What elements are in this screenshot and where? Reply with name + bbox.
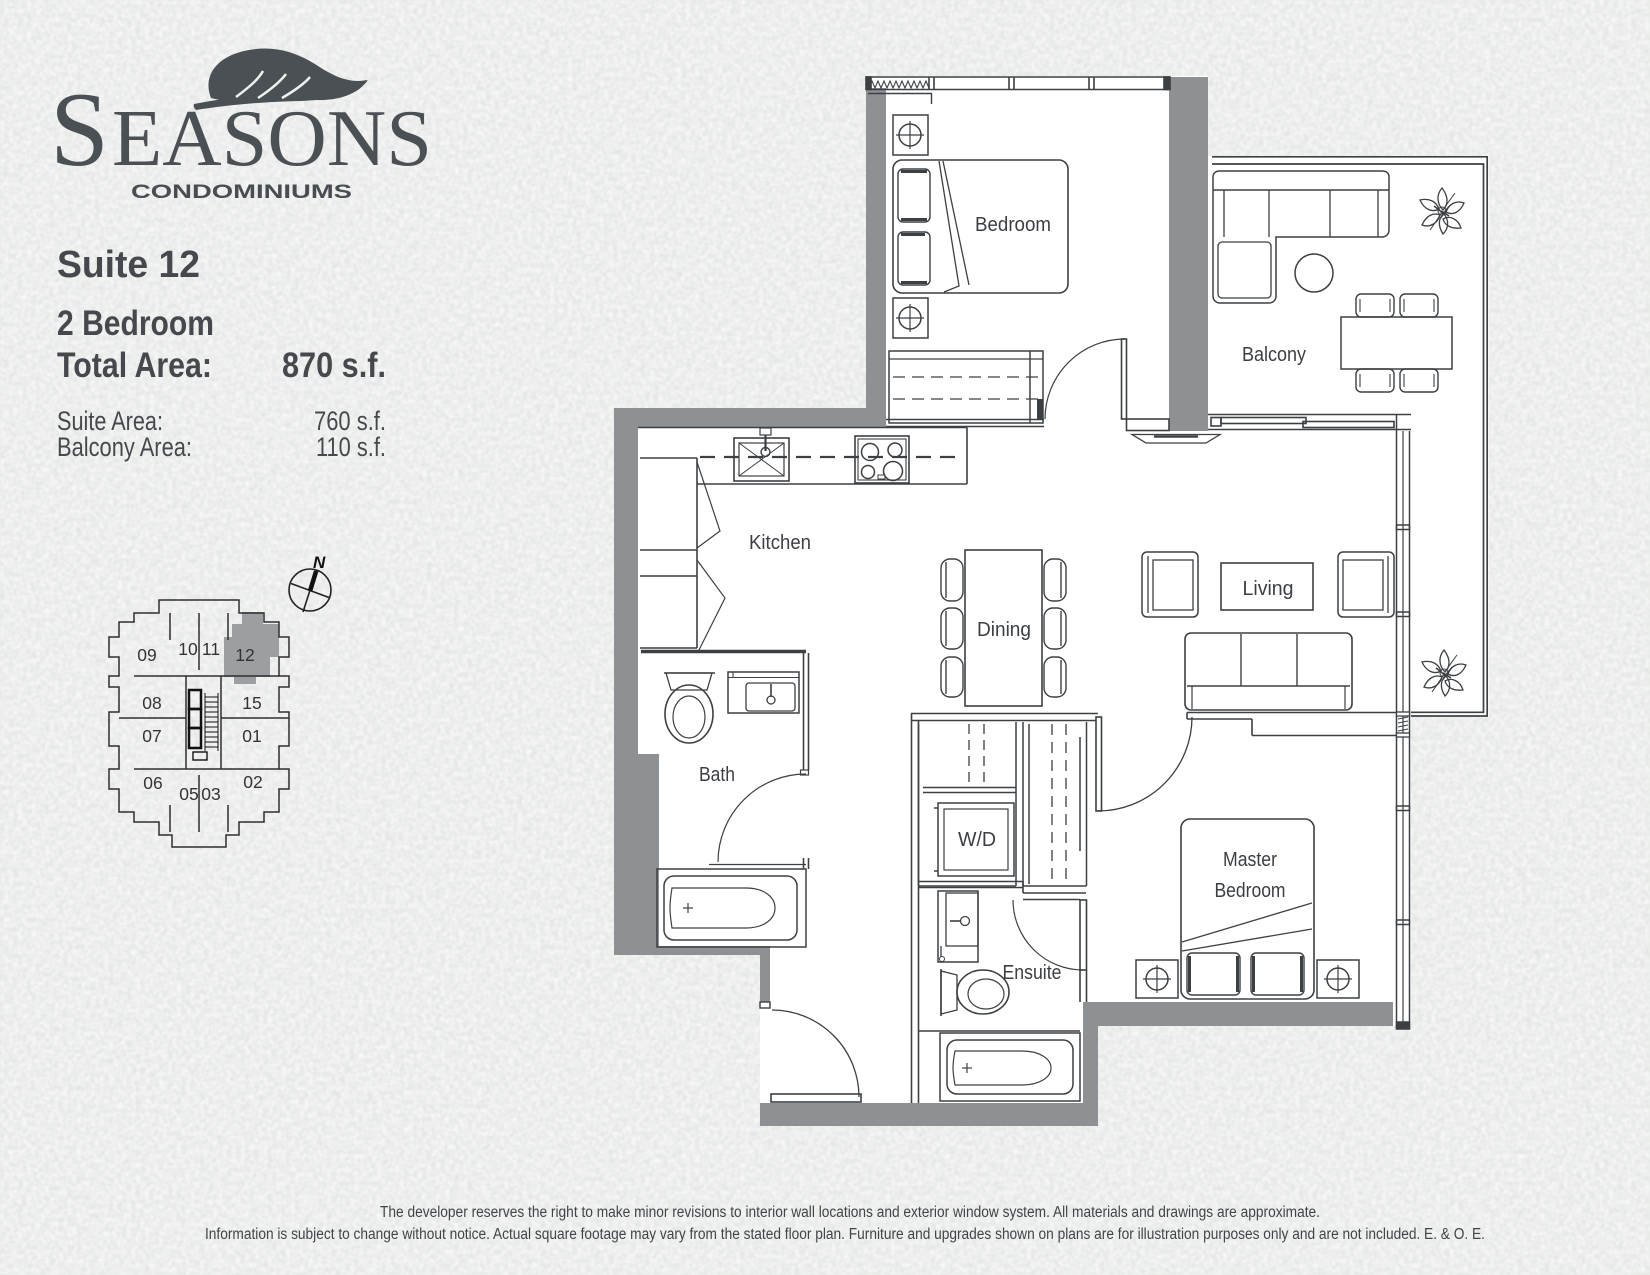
svg-text:Suite 12: Suite 12 (57, 244, 200, 286)
svg-text:Balcony Area:: Balcony Area: (57, 432, 192, 462)
svg-text:12: 12 (235, 645, 254, 665)
svg-text:Bedroom: Bedroom (975, 214, 1051, 236)
svg-text:CONDOMINIUMS: CONDOMINIUMS (131, 182, 352, 203)
svg-text:110 s.f.: 110 s.f. (316, 432, 386, 462)
svg-text:10: 10 (178, 639, 198, 659)
svg-text:N: N (313, 553, 326, 572)
svg-text:Balcony: Balcony (1242, 344, 1306, 366)
svg-text:11: 11 (202, 639, 220, 659)
svg-text:02: 02 (243, 772, 262, 792)
svg-text:2 Bedroom: 2 Bedroom (57, 304, 214, 343)
svg-text:EASONS: EASONS (112, 95, 432, 183)
svg-text:Bath: Bath (699, 764, 735, 786)
svg-text:06: 06 (143, 773, 162, 793)
svg-text:07: 07 (142, 726, 161, 746)
svg-text:09: 09 (137, 645, 156, 665)
svg-text:05: 05 (179, 784, 198, 804)
svg-text:03: 03 (201, 784, 220, 804)
svg-text:870 s.f.: 870 s.f. (282, 346, 386, 385)
svg-text:The developer reserves the rig: The developer reserves the right to make… (380, 1204, 1320, 1221)
svg-text:Kitchen: Kitchen (749, 532, 811, 554)
svg-text:08: 08 (142, 693, 161, 713)
svg-text:01: 01 (242, 726, 261, 746)
svg-text:Dining: Dining (977, 619, 1031, 641)
svg-text:Living: Living (1243, 578, 1294, 600)
svg-text:Total Area:: Total Area: (57, 346, 212, 385)
svg-text:Bedroom: Bedroom (1215, 880, 1286, 902)
svg-text:Information is subject to chan: Information is subject to change without… (205, 1226, 1485, 1243)
svg-text:Master: Master (1223, 849, 1277, 871)
svg-text:15: 15 (242, 693, 261, 713)
svg-text:S: S (50, 71, 109, 188)
svg-text:Ensuite: Ensuite (1003, 962, 1062, 984)
svg-text:W/D: W/D (958, 829, 996, 851)
